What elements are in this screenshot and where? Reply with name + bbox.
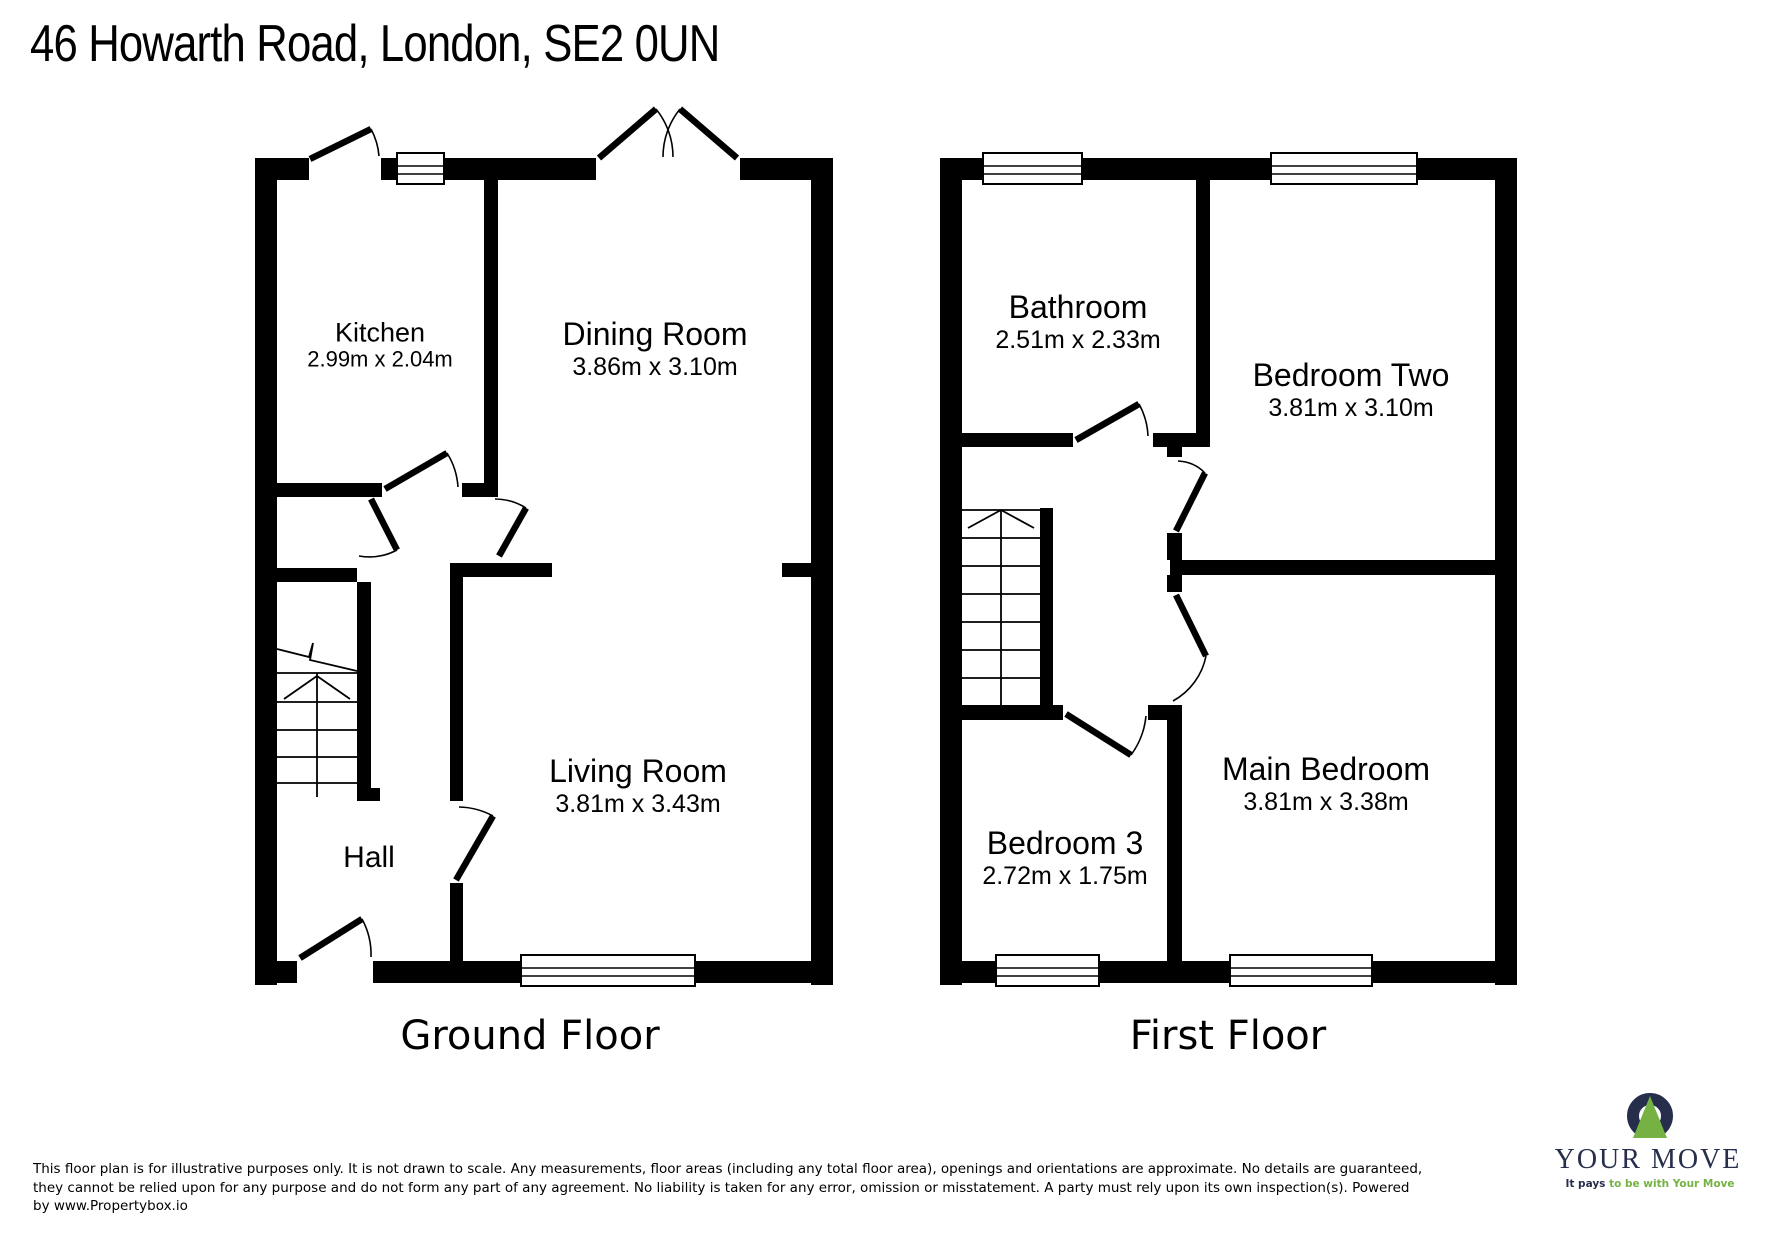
room-name: Main Bedroom [1222,752,1430,788]
floorplan-drawing [0,0,1771,1239]
room-dims: 2.51m x 2.33m [995,326,1160,354]
window-bedroom-two [1271,153,1417,184]
first-floor-doors [1066,404,1206,755]
room-name: Dining Room [563,317,748,353]
window-main-bedroom [1230,955,1372,986]
room-label-bedroom-two: Bedroom Two 3.81m x 3.10m [1253,358,1450,422]
your-move-tagline: It pays to be with Your Move [1565,1178,1734,1190]
ground-floor-caption: Ground Floor [400,1013,659,1059]
ground-floor-walls [255,158,833,985]
room-label-living-room: Living Room 3.81m x 3.43m [549,754,727,818]
room-name: Living Room [549,754,727,790]
window-bathroom [983,153,1082,184]
first-floor-stairs [962,510,1040,705]
room-dims: 3.86m x 3.10m [563,353,748,381]
ground-floor-doors [300,109,737,958]
window-bedroom-three [996,955,1099,986]
room-label-kitchen: Kitchen 2.99m x 2.04m [307,318,453,373]
window-kitchen [397,153,444,184]
room-name: Bedroom 3 [982,826,1147,862]
room-dims: 3.81m x 3.43m [549,790,727,818]
floorplan-page: 46 Howarth Road, London, SE2 0UN Kitchen… [0,0,1771,1239]
page-title: 46 Howarth Road, London, SE2 0UN [30,14,719,74]
window-living-room [521,955,695,986]
tagline-rest: to be with Your Move [1605,1178,1734,1190]
room-name: Bedroom Two [1253,358,1450,394]
first-floor-caption: First Floor [1130,1013,1326,1059]
room-label-main-bedroom: Main Bedroom 3.81m x 3.38m [1222,752,1430,816]
room-label-bathroom: Bathroom 2.51m x 2.33m [995,290,1160,354]
ground-floor-plan [255,109,833,986]
room-dims: 3.81m x 3.10m [1253,394,1450,422]
room-dims: 2.99m x 2.04m [307,348,453,373]
your-move-logo-icon [1633,1096,1667,1138]
room-dims: 3.81m x 3.38m [1222,788,1430,816]
ground-floor-stairs [277,643,357,797]
disclaimer-line-2: they cannot be relied upon for any purpo… [33,1179,1422,1198]
room-label-hall: Hall [343,841,395,875]
room-name: Bathroom [995,290,1160,326]
room-name: Kitchen [307,318,453,348]
disclaimer-line-1: This floor plan is for illustrative purp… [33,1160,1422,1179]
room-dims: 2.72m x 1.75m [982,862,1147,890]
tagline-bold: It pays [1565,1178,1605,1190]
room-label-bedroom-three: Bedroom 3 2.72m x 1.75m [982,826,1147,890]
disclaimer: This floor plan is for illustrative purp… [33,1160,1422,1216]
disclaimer-line-3: by www.Propertybox.io [33,1197,1422,1216]
your-move-wordmark: YOUR MOVE [1555,1144,1742,1176]
room-label-dining-room: Dining Room 3.86m x 3.10m [563,317,748,381]
